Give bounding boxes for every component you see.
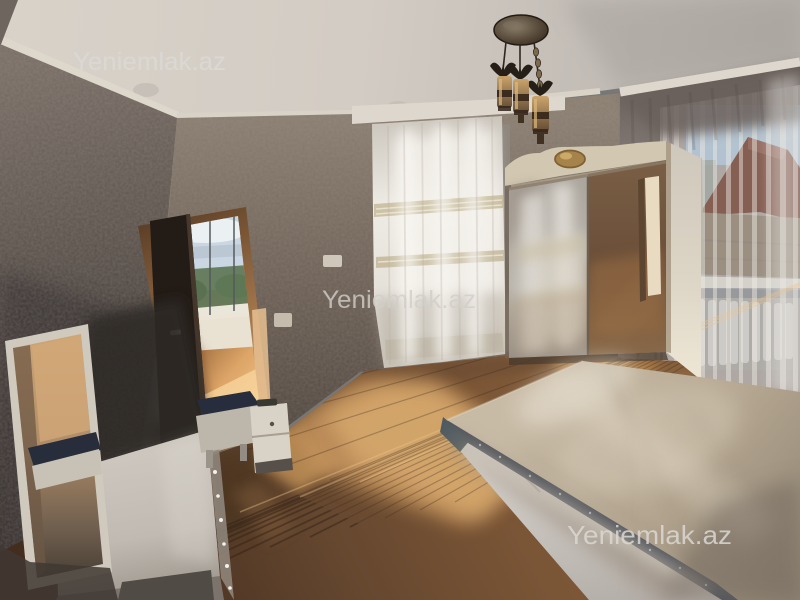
svg-text:Yeniemlak.az: Yeniemlak.az [567,520,732,550]
svg-text:Yeniemlak.az: Yeniemlak.az [322,286,476,314]
svg-text:Yeniemlak.az: Yeniemlak.az [73,48,226,76]
